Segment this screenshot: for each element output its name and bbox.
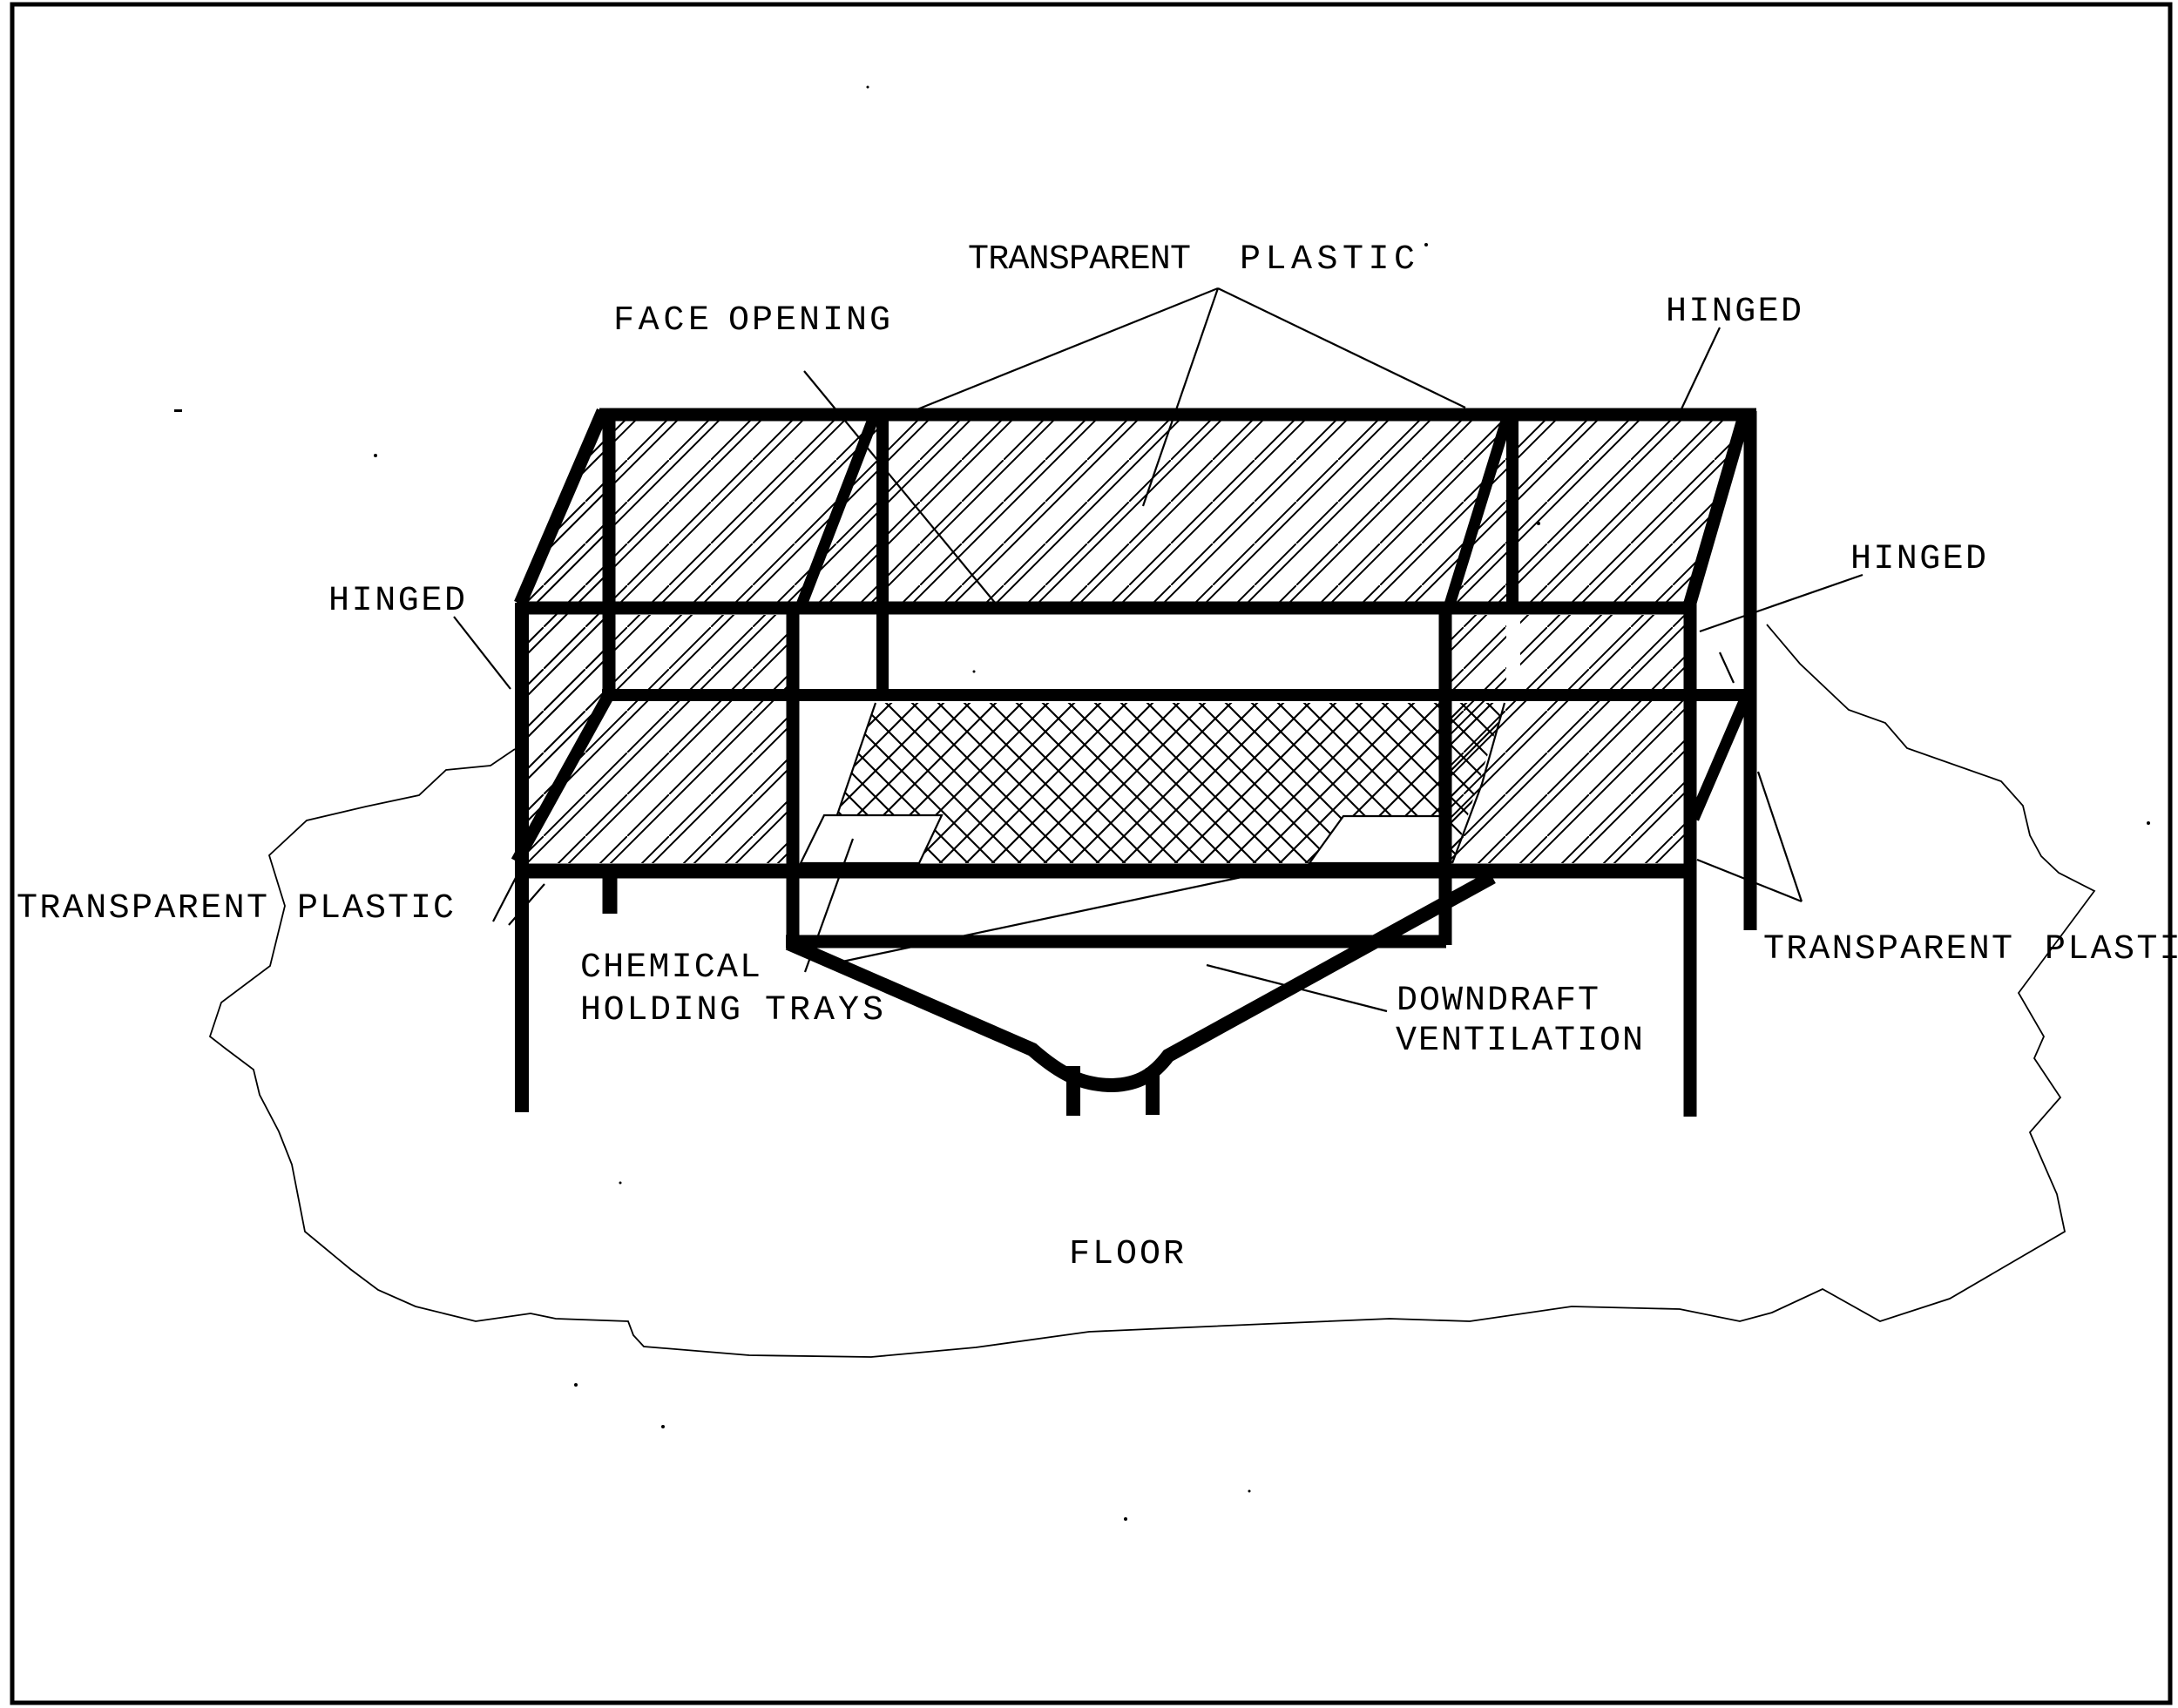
svg-text:PLASTIC: PLASTIC: [297, 889, 454, 928]
svg-text:OPENING: OPENING: [728, 301, 890, 341]
svg-text:DOWNDRAFT: DOWNDRAFT: [1397, 982, 1599, 1021]
svg-text:FLOOR: FLOOR: [1069, 1235, 1184, 1274]
svg-text:TRANSPARENT: TRANSPARENT: [968, 240, 1191, 280]
svg-text:PLASTIC: PLASTIC: [1240, 240, 1415, 280]
svg-text:VENTILATION: VENTILATION: [1396, 1022, 1643, 1061]
svg-text:HOLDING: HOLDING: [580, 991, 741, 1030]
svg-text:TRANSPARENT: TRANSPARENT: [17, 889, 267, 928]
svg-text:TRAYS: TRAYS: [765, 991, 883, 1030]
svg-text:TRANSPARENT: TRANSPARENT: [1763, 930, 2012, 969]
